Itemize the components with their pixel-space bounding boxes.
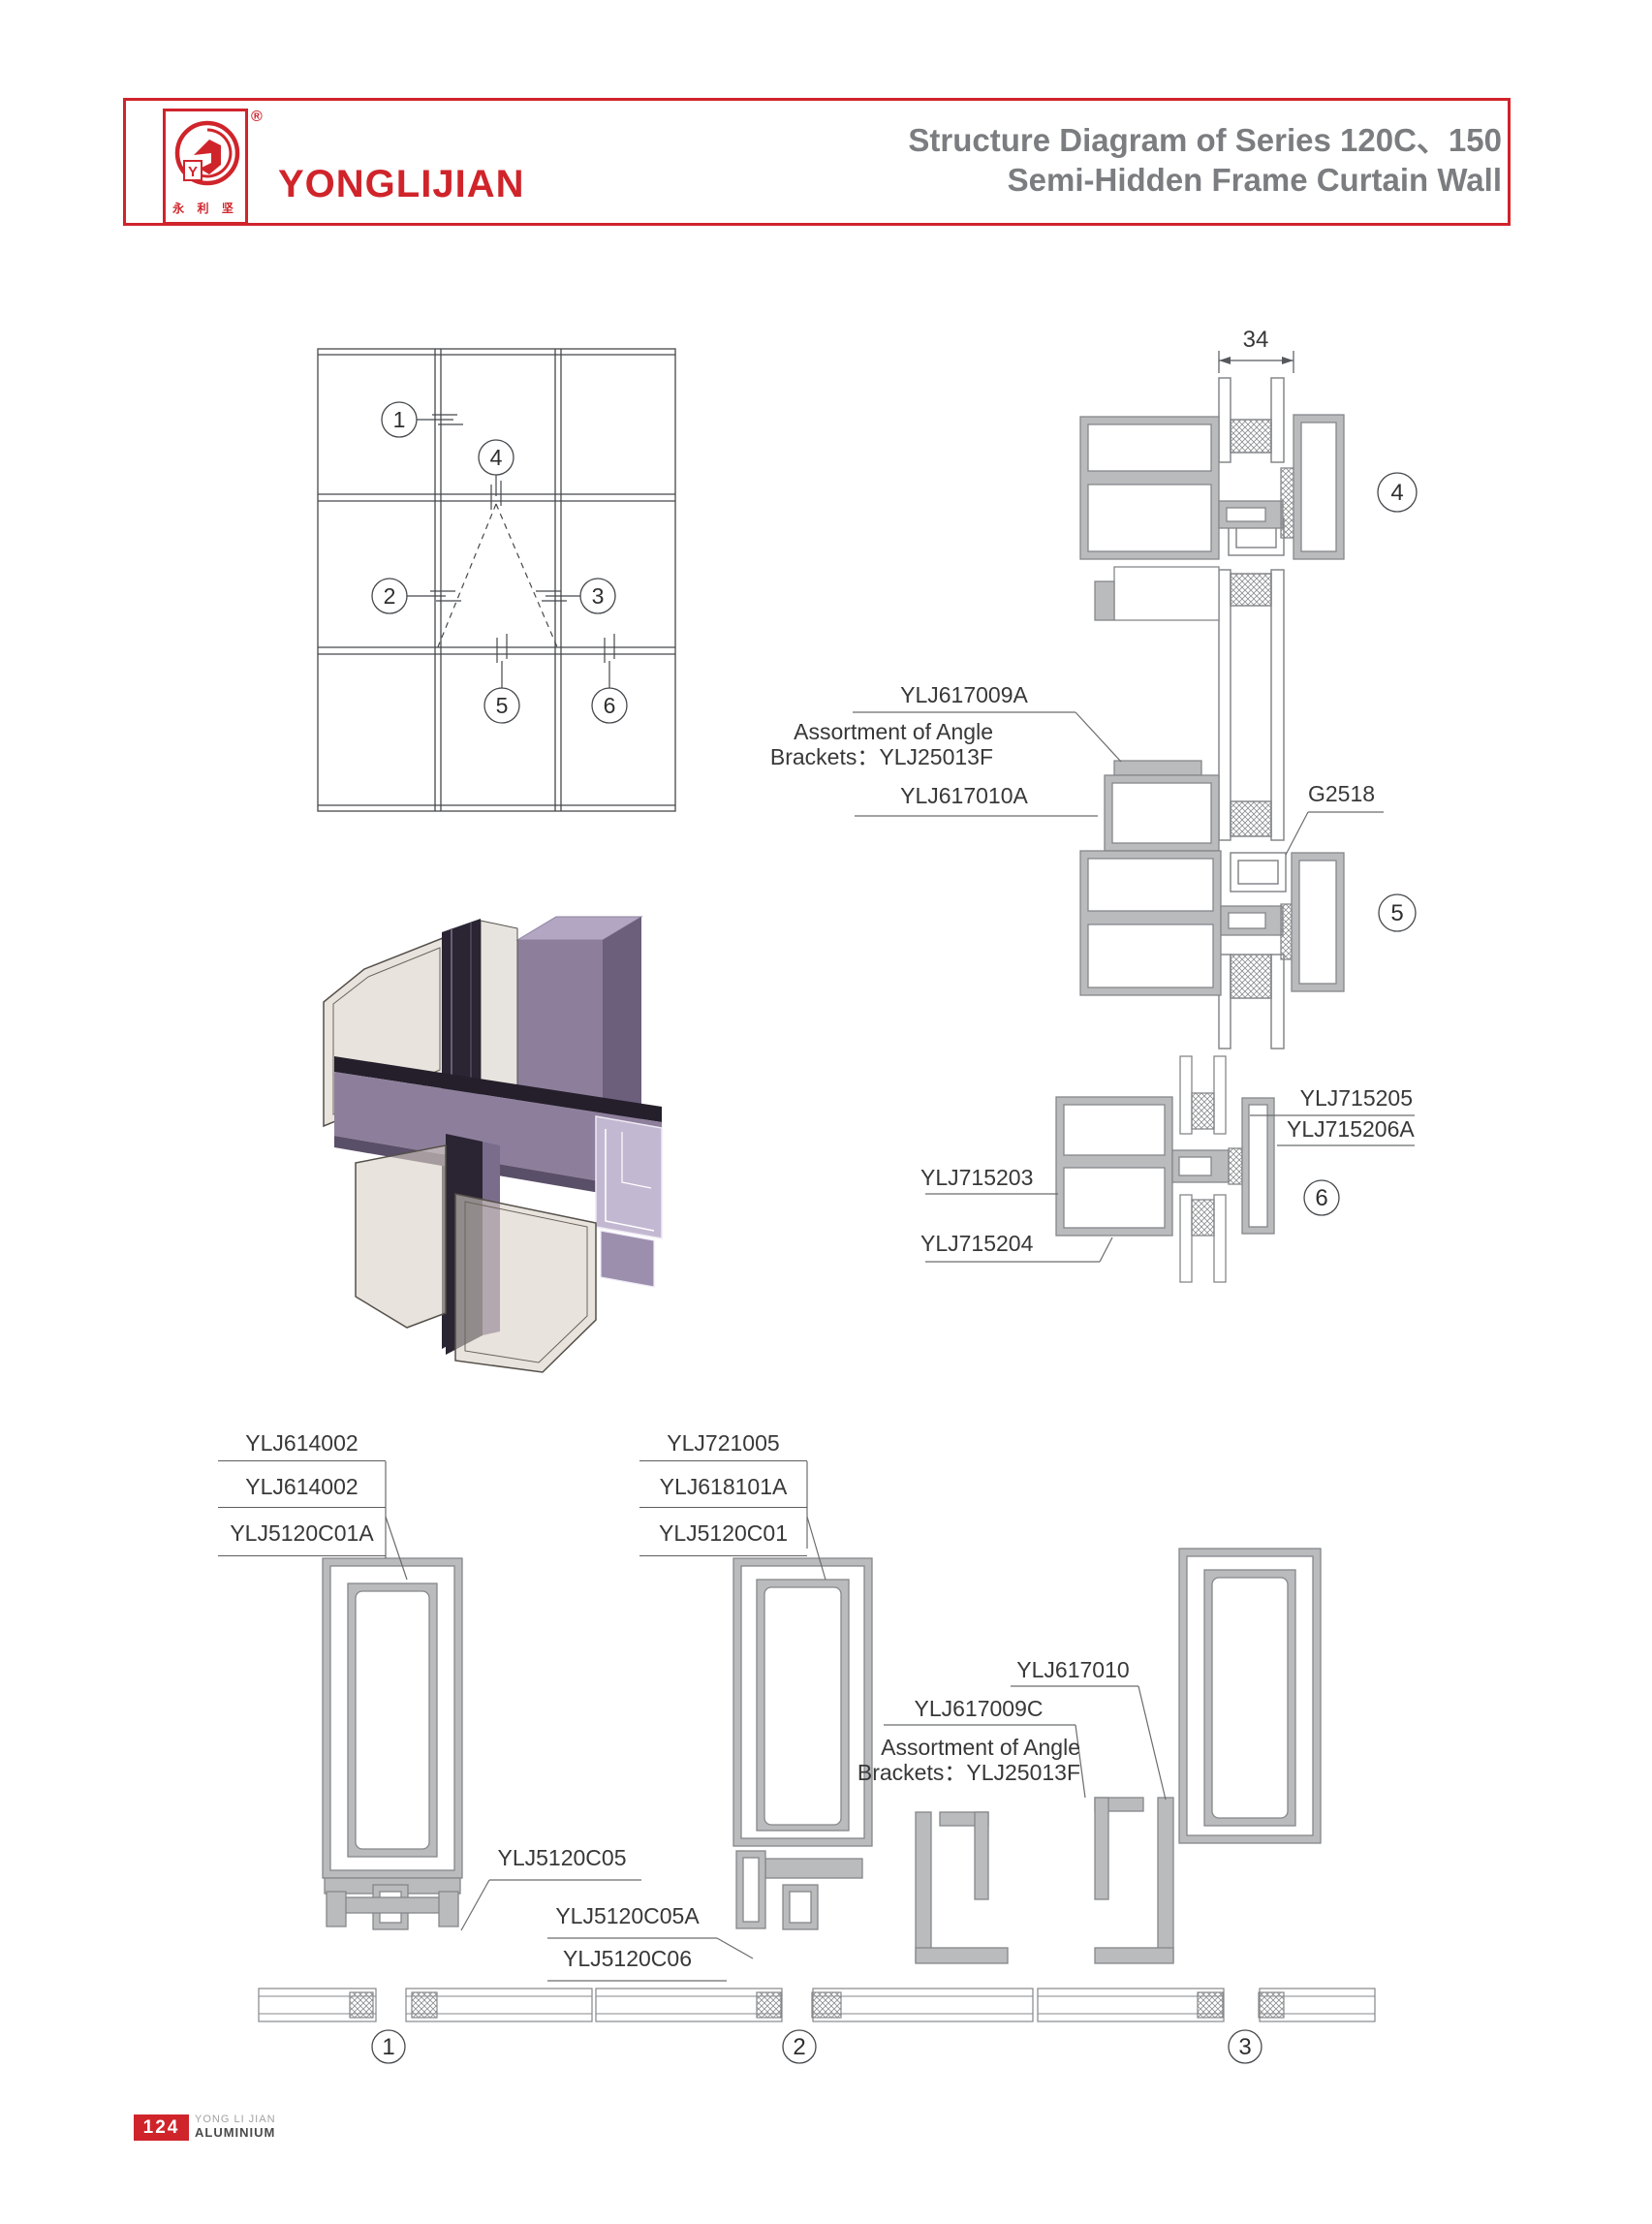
- callout-2: 2: [384, 583, 396, 609]
- angle-note2-line2: Brackets：YLJ25013F: [838, 1760, 1080, 1785]
- callout-1-detail: 1: [382, 2034, 394, 2060]
- callout-4: 4: [490, 445, 503, 470]
- logo-letter: Y: [188, 164, 198, 180]
- bracket-617009c: [916, 1812, 1008, 1963]
- page-number-badge: 124: [134, 2114, 189, 2141]
- label-ylj617010: YLJ617010: [1008, 1657, 1138, 1682]
- registered-mark: ®: [251, 109, 263, 126]
- label-stack-mid-1: YLJ721005: [639, 1430, 807, 1461]
- sill-glass-band: [259, 1989, 1375, 2021]
- label-ylj715204: YLJ715204: [920, 1231, 1032, 1256]
- footer-brand: YONG LI JIAN ALUMINIUM: [195, 2114, 276, 2140]
- callout-3-detail: 3: [1238, 2034, 1251, 2060]
- callout-1: 1: [393, 407, 406, 432]
- label-stack-left-1: YLJ614002: [218, 1430, 386, 1461]
- label-ylj5120c05a: YLJ5120C05A: [538, 1903, 717, 1928]
- catalog-page: Y ® 永 利 坚 YONGLIJIAN Structure Diagram o…: [0, 0, 1652, 2224]
- logo-emblem-icon: Y: [171, 114, 242, 196]
- glass-column: [1219, 378, 1286, 1049]
- render-3d: [310, 872, 717, 1376]
- label-stack-left-2: YLJ614002: [218, 1474, 386, 1508]
- footer-brand-line2: ALUMINIUM: [195, 2125, 276, 2140]
- render-glass-bottom-left: [356, 1145, 446, 1328]
- page-title-line2: Semi-Hidden Frame Curtain Wall: [581, 160, 1502, 200]
- page-title: Structure Diagram of Series 120C、150 Sem…: [581, 120, 1502, 200]
- brand-chinese: 永 利 坚: [165, 200, 246, 216]
- bracket-617010: [1095, 1798, 1173, 1963]
- angle-note-line2: Brackets：YLJ25013F: [746, 744, 993, 769]
- label-ylj5120c05: YLJ5120C05: [480, 1845, 644, 1870]
- elevation-diagram: 1 4 2 3 5 6: [310, 341, 688, 821]
- angle-note2-line1: Assortment of Angle: [838, 1735, 1080, 1760]
- callout-2-detail: 2: [793, 2034, 805, 2060]
- angle-note-line1: Assortment of Angle: [746, 719, 993, 744]
- label-ylj617010a: YLJ617010A: [853, 783, 1075, 808]
- render-glass-bottom-center: [455, 1194, 596, 1372]
- elevation-grid: [318, 349, 675, 811]
- callout-3: 3: [592, 583, 605, 609]
- callout-5-detail: 5: [1390, 900, 1403, 926]
- label-ylj715203: YLJ715203: [920, 1165, 1032, 1190]
- brand-name: YONGLIJIAN: [278, 163, 524, 206]
- label-ylj617009c: YLJ617009C: [877, 1696, 1080, 1721]
- label-g2518: G2518: [1308, 781, 1395, 806]
- dim-34-label: 34: [1243, 327, 1269, 353]
- detail3-mullion: [1179, 1549, 1321, 1843]
- section4-profiles: [1080, 415, 1344, 620]
- label-stack-mid-2: YLJ618101A: [639, 1474, 807, 1508]
- label-ylj715206a: YLJ715206A: [1287, 1116, 1413, 1142]
- detail1-mullion: [323, 1558, 462, 1929]
- label-ylj5120c06: YLJ5120C06: [538, 1946, 717, 1971]
- callout-6: 6: [604, 693, 616, 718]
- label-stack-mid-3: YLJ5120C01: [639, 1520, 807, 1556]
- callout-4-detail: 4: [1390, 480, 1403, 506]
- label-stack-left-3: YLJ5120C01A: [218, 1520, 386, 1556]
- bottom-callouts: 1 2 3: [372, 2030, 1262, 2063]
- label-ylj715205: YLJ715205: [1296, 1085, 1413, 1111]
- callout-5: 5: [496, 693, 509, 718]
- dimension-34: [1219, 351, 1294, 373]
- callout-6-detail: 6: [1315, 1185, 1327, 1211]
- section5-profiles: [1080, 761, 1344, 995]
- footer-brand-line1: YONG LI JIAN: [195, 2114, 276, 2125]
- label-angle-note-2: Assortment of Angle Brackets：YLJ25013F: [838, 1735, 1080, 1785]
- label-angle-note: Assortment of Angle Brackets：YLJ25013F: [746, 719, 993, 769]
- elevation-callouts: 1 4 2 3 5 6: [372, 402, 627, 723]
- section6-profiles: [1056, 1056, 1274, 1282]
- label-ylj617009a: YLJ617009A: [853, 682, 1075, 707]
- page-title-line1: Structure Diagram of Series 120C、150: [581, 120, 1502, 160]
